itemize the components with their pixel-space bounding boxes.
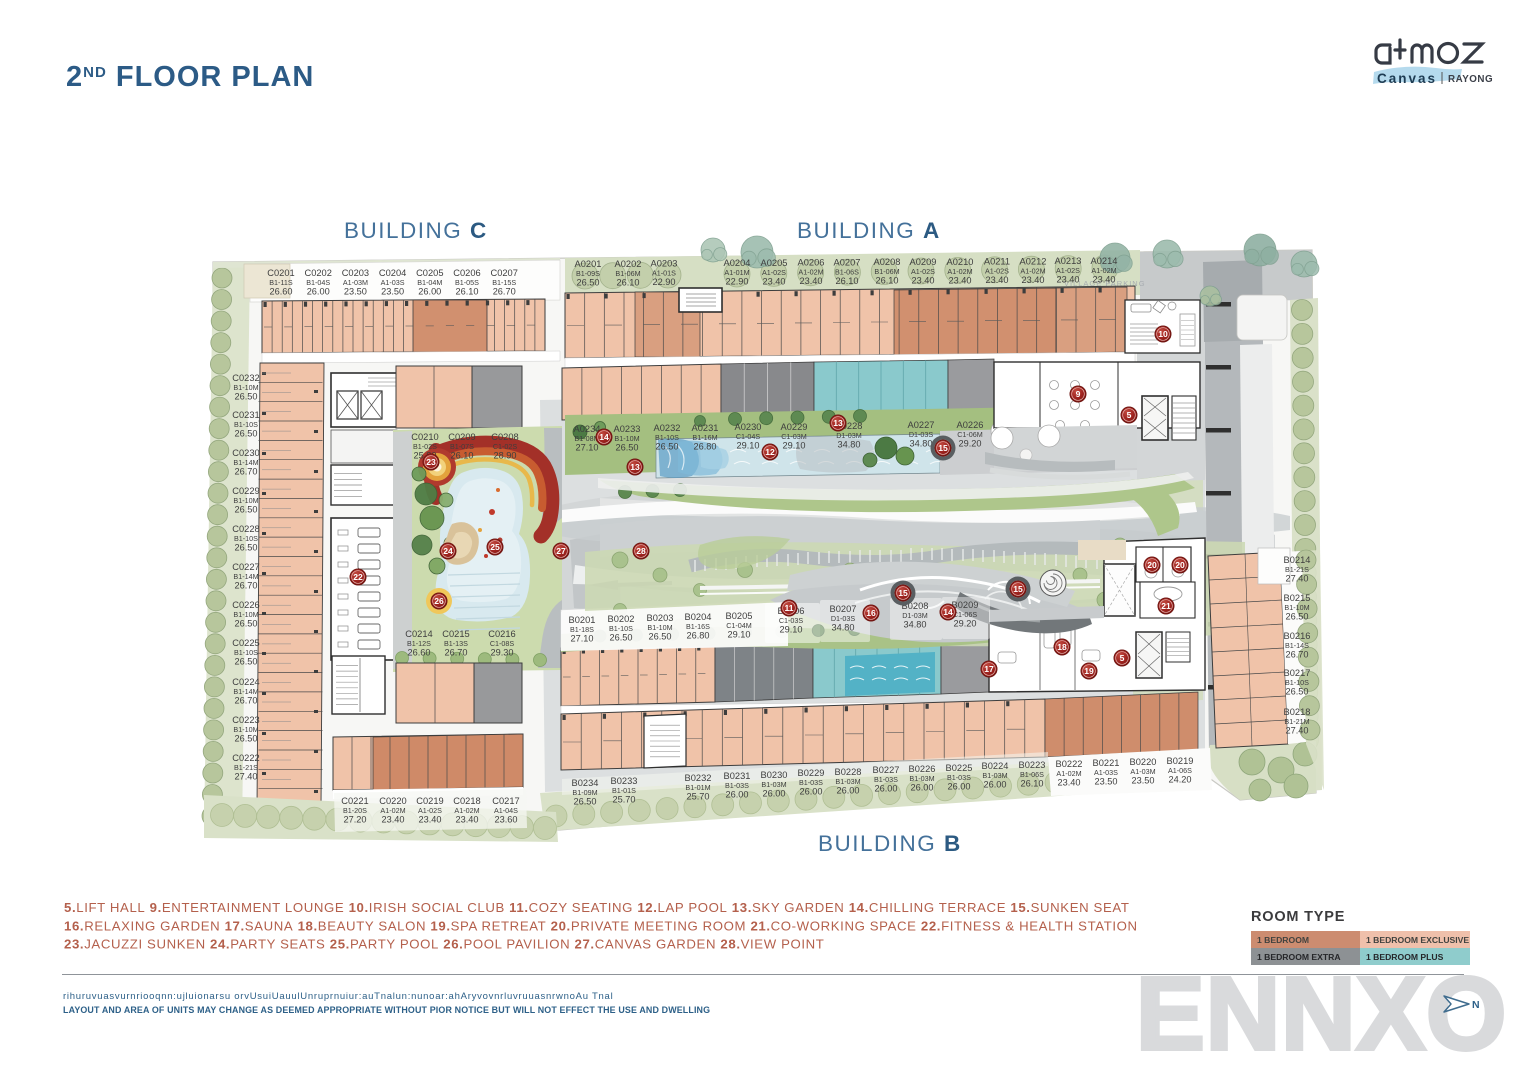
svg-text:20: 20 <box>1147 560 1157 570</box>
svg-text:23.40: 23.40 <box>949 275 972 285</box>
svg-text:23.60: 23.60 <box>495 815 518 825</box>
svg-text:C0230: C0230 <box>232 448 259 458</box>
svg-text:BUILDING B: BUILDING B <box>818 831 962 856</box>
svg-text:13: 13 <box>630 462 640 472</box>
svg-text:C0219: C0219 <box>416 796 443 806</box>
svg-text:C0215: C0215 <box>442 629 469 639</box>
svg-text:23.40: 23.40 <box>763 276 786 286</box>
svg-text:26.50: 26.50 <box>574 797 597 807</box>
svg-text:27.40: 27.40 <box>1286 574 1309 584</box>
svg-text:26.70: 26.70 <box>493 287 516 297</box>
svg-text:23.40: 23.40 <box>382 815 405 825</box>
svg-text:RAYONG: RAYONG <box>1448 74 1493 85</box>
svg-text:25.70: 25.70 <box>613 795 636 805</box>
svg-text:A0211: A0211 <box>984 257 1010 267</box>
svg-text:26.50: 26.50 <box>235 619 258 629</box>
svg-text:C0223: C0223 <box>232 715 259 725</box>
svg-text:C0202: C0202 <box>304 268 331 278</box>
svg-text:34.80: 34.80 <box>832 623 855 633</box>
svg-text:B0234: B0234 <box>572 778 599 788</box>
svg-text:26: 26 <box>434 596 444 606</box>
svg-text:15: 15 <box>938 443 948 453</box>
svg-text:C0217: C0217 <box>492 796 519 806</box>
svg-text:26.10: 26.10 <box>617 277 640 287</box>
svg-text:A0230: A0230 <box>735 422 762 432</box>
svg-text:22.90: 22.90 <box>653 277 676 287</box>
svg-text:26.00: 26.00 <box>307 287 330 297</box>
svg-text:23.50: 23.50 <box>381 287 404 297</box>
svg-text:23.40: 23.40 <box>419 815 442 825</box>
svg-text:29.20: 29.20 <box>954 619 977 629</box>
svg-text:20: 20 <box>1175 560 1185 570</box>
svg-text:A0205: A0205 <box>761 258 788 268</box>
svg-text:29.30: 29.30 <box>491 648 514 658</box>
svg-text:A0232: A0232 <box>654 423 681 433</box>
svg-text:A0214: A0214 <box>1091 256 1118 266</box>
svg-text:29.10: 29.10 <box>728 630 751 640</box>
svg-text:C0203: C0203 <box>342 268 369 278</box>
svg-text:B0207: B0207 <box>830 604 857 614</box>
svg-text:26.70: 26.70 <box>235 467 258 477</box>
svg-text:5.LIFT HALL 9.ENTERTAINMENT L: 5.LIFT HALL 9.ENTERTAINMENT LOUNGE 10.IR… <box>64 900 1130 915</box>
svg-text:C0208: C0208 <box>491 432 518 442</box>
svg-text:13: 13 <box>833 418 843 428</box>
svg-text:1 BEDROOM PLUS: 1 BEDROOM PLUS <box>1366 952 1444 962</box>
svg-text:26.10: 26.10 <box>451 451 474 461</box>
svg-text:B0229: B0229 <box>798 768 825 778</box>
svg-text:29.10: 29.10 <box>780 625 803 635</box>
svg-text:26.70: 26.70 <box>235 696 258 706</box>
svg-text:26.00: 26.00 <box>837 786 860 796</box>
svg-text:23.40: 23.40 <box>456 815 479 825</box>
svg-text:18: 18 <box>1057 642 1067 652</box>
svg-text:25.70: 25.70 <box>687 792 710 802</box>
svg-text:26.50: 26.50 <box>610 633 633 643</box>
svg-text:26.50: 26.50 <box>1286 687 1309 697</box>
svg-text:A0202: A0202 <box>615 259 642 269</box>
svg-text:10: 10 <box>1158 329 1168 339</box>
svg-text:C0209: C0209 <box>448 432 475 442</box>
svg-text:24.20: 24.20 <box>1169 775 1192 785</box>
svg-text:B0216: B0216 <box>1284 631 1311 641</box>
svg-text:27.10: 27.10 <box>576 443 599 453</box>
svg-text:26.00: 26.00 <box>418 287 441 297</box>
svg-text:N: N <box>1472 999 1480 1011</box>
svg-text:23.40: 23.40 <box>1022 275 1045 285</box>
svg-text:C0231: C0231 <box>232 410 259 420</box>
svg-text:26.00: 26.00 <box>763 789 786 799</box>
svg-text:C0206: C0206 <box>453 268 480 278</box>
svg-text:28: 28 <box>636 546 646 556</box>
svg-text:25: 25 <box>490 542 500 552</box>
svg-text:A0203: A0203 <box>651 259 678 269</box>
svg-text:C0221: C0221 <box>341 796 368 806</box>
svg-text:26.50: 26.50 <box>649 632 672 642</box>
svg-text:BUILDING A: BUILDING A <box>797 218 941 243</box>
svg-text:C0207: C0207 <box>490 268 517 278</box>
svg-text:14: 14 <box>599 432 609 442</box>
svg-text:16.RELAXING GARDEN 17.SAUNA: 16.RELAXING GARDEN 17.SAUNA 18.BEAUTY SA… <box>64 919 1138 934</box>
svg-text:B0221: B0221 <box>1093 758 1120 768</box>
svg-text:15: 15 <box>898 588 908 598</box>
svg-text:23.50: 23.50 <box>1095 777 1118 787</box>
svg-text:9: 9 <box>1076 389 1081 399</box>
svg-text:C0218: C0218 <box>453 796 480 806</box>
svg-text:23.40: 23.40 <box>1057 275 1080 285</box>
svg-text:26.00: 26.00 <box>800 787 823 797</box>
svg-text:BUILDING C: BUILDING C <box>344 218 488 243</box>
svg-text:34.80: 34.80 <box>904 620 927 630</box>
svg-text:1 BEDROOM EXTRA: 1 BEDROOM EXTRA <box>1257 952 1341 962</box>
svg-text:27.40: 27.40 <box>235 772 258 782</box>
svg-text:C0232: C0232 <box>232 373 259 383</box>
svg-text:29.10: 29.10 <box>737 441 760 451</box>
svg-text:12: 12 <box>765 447 775 457</box>
svg-text:B0214: B0214 <box>1284 555 1311 565</box>
svg-text:B0230: B0230 <box>761 770 788 780</box>
svg-text:A0207: A0207 <box>834 257 861 267</box>
svg-text:C0228: C0228 <box>232 524 259 534</box>
svg-text:26.50: 26.50 <box>235 657 258 667</box>
svg-text:B0205: B0205 <box>726 611 753 621</box>
svg-text:26.10: 26.10 <box>836 276 859 286</box>
svg-text:C0216: C0216 <box>488 629 515 639</box>
svg-text:11: 11 <box>784 603 793 613</box>
svg-text:Canvas: Canvas <box>1377 71 1437 86</box>
svg-text:A0213: A0213 <box>1055 256 1082 266</box>
svg-text:24: 24 <box>443 546 453 556</box>
svg-text:B0231: B0231 <box>724 771 751 781</box>
svg-text:A0233: A0233 <box>614 424 641 434</box>
svg-text:A0229: A0229 <box>781 422 808 432</box>
svg-text:26.00: 26.00 <box>875 784 898 794</box>
svg-text:B0215: B0215 <box>1284 593 1311 603</box>
svg-text:23.JACUZZI SUNKEN 24.PARTY SE: 23.JACUZZI SUNKEN 24.PARTY SEATS 25.PART… <box>64 937 824 952</box>
svg-text:5: 5 <box>1127 410 1132 420</box>
svg-text:A0212: A0212 <box>1020 256 1047 266</box>
svg-text:23.40: 23.40 <box>1093 274 1116 284</box>
svg-text:26.50: 26.50 <box>577 278 600 288</box>
svg-text:B0228: B0228 <box>835 767 862 777</box>
svg-text:B0203: B0203 <box>647 613 674 623</box>
svg-text:B0204: B0204 <box>685 612 712 622</box>
svg-text:A0204: A0204 <box>724 258 751 268</box>
svg-text:26.50: 26.50 <box>235 505 258 515</box>
svg-text:B0232: B0232 <box>685 773 712 783</box>
svg-text:27.20: 27.20 <box>344 815 367 825</box>
svg-text:26.50: 26.50 <box>235 734 258 744</box>
svg-text:22.90: 22.90 <box>726 277 749 287</box>
svg-text:B0227: B0227 <box>873 765 900 775</box>
svg-text:C0225: C0225 <box>232 638 259 648</box>
svg-text:A0206: A0206 <box>798 258 825 268</box>
svg-text:26.00: 26.00 <box>948 782 971 792</box>
svg-text:14: 14 <box>943 607 953 617</box>
svg-text:23.50: 23.50 <box>344 287 367 297</box>
svg-text:ROOM TYPE: ROOM TYPE <box>1251 909 1345 925</box>
svg-text:C0226: C0226 <box>232 600 259 610</box>
svg-text:29.20: 29.20 <box>959 439 982 449</box>
svg-text:26.50: 26.50 <box>656 442 679 452</box>
svg-text:A0209: A0209 <box>910 257 937 267</box>
svg-text:A0226: A0226 <box>957 420 984 430</box>
svg-text:B0202: B0202 <box>608 614 635 624</box>
svg-text:27.10: 27.10 <box>571 634 594 644</box>
svg-text:B0218: B0218 <box>1284 707 1311 717</box>
svg-text:26.10: 26.10 <box>456 287 479 297</box>
svg-text:23.50: 23.50 <box>1132 776 1155 786</box>
svg-text:26.70: 26.70 <box>235 581 258 591</box>
svg-text:26.80: 26.80 <box>694 442 717 452</box>
svg-text:B0201: B0201 <box>569 615 596 625</box>
svg-text:26.10: 26.10 <box>876 276 899 286</box>
svg-text:17: 17 <box>984 664 994 674</box>
svg-text:26.10: 26.10 <box>1021 779 1044 789</box>
svg-text:B0223: B0223 <box>1019 760 1046 770</box>
svg-text:C0210: C0210 <box>411 432 438 442</box>
svg-text:26.00: 26.00 <box>984 780 1007 790</box>
svg-text:27: 27 <box>556 546 566 556</box>
svg-text:C0222: C0222 <box>232 753 259 763</box>
svg-text:23.40: 23.40 <box>986 275 1009 285</box>
svg-text:26.00: 26.00 <box>726 790 749 800</box>
svg-text:19: 19 <box>1084 666 1094 676</box>
svg-text:C0204: C0204 <box>379 268 406 278</box>
svg-text:B0219: B0219 <box>1167 756 1194 766</box>
svg-text:B0233: B0233 <box>611 776 638 786</box>
svg-text:B0217: B0217 <box>1284 668 1311 678</box>
svg-text:C0229: C0229 <box>232 486 259 496</box>
svg-text:5: 5 <box>1120 653 1125 663</box>
svg-text:23.40: 23.40 <box>800 276 823 286</box>
svg-text:26.50: 26.50 <box>235 392 258 402</box>
svg-text:1 BEDROOM: 1 BEDROOM <box>1257 935 1309 945</box>
svg-text:C0224: C0224 <box>232 677 259 687</box>
svg-text:C0220: C0220 <box>379 796 406 806</box>
svg-text:15: 15 <box>1013 584 1023 594</box>
svg-text:A0208: A0208 <box>874 257 901 267</box>
svg-text:23.40: 23.40 <box>1058 778 1081 788</box>
svg-text:C0227: C0227 <box>232 562 259 572</box>
svg-text:B0224: B0224 <box>982 761 1009 771</box>
svg-text:26.80: 26.80 <box>687 631 710 641</box>
svg-text:26.50: 26.50 <box>1286 612 1309 622</box>
svg-text:23.40: 23.40 <box>912 275 935 285</box>
svg-text:16: 16 <box>866 608 876 618</box>
svg-text:22: 22 <box>353 572 363 582</box>
svg-text:C0214: C0214 <box>405 629 432 639</box>
svg-text:B0220: B0220 <box>1130 757 1157 767</box>
svg-text:LAYOUT AND AREA OF UNITS MAY C: LAYOUT AND AREA OF UNITS MAY CHANGE AS D… <box>63 1005 710 1015</box>
svg-text:26.70: 26.70 <box>1286 650 1309 660</box>
svg-text:B0225: B0225 <box>946 763 973 773</box>
svg-text:B0226: B0226 <box>909 764 936 774</box>
svg-text:B0222: B0222 <box>1056 759 1083 769</box>
svg-text:26.50: 26.50 <box>235 543 258 553</box>
svg-text:26.00: 26.00 <box>911 783 934 793</box>
svg-text:28.90: 28.90 <box>494 451 517 461</box>
svg-text:1 BEDROOM EXCLUSIVE: 1 BEDROOM EXCLUSIVE <box>1366 935 1469 945</box>
svg-text:26.50: 26.50 <box>616 443 639 453</box>
svg-text:29.10: 29.10 <box>783 441 806 451</box>
svg-text:rihuruvuasvurnriooqnn:ujluiona: rihuruvuasvurnriooqnn:ujluionarsu orvUsu… <box>63 991 613 1002</box>
svg-text:34.80: 34.80 <box>838 440 861 450</box>
svg-text:26.60: 26.60 <box>408 648 431 658</box>
svg-text:ENNXO: ENNXO <box>1136 956 1507 1071</box>
svg-text:A0210: A0210 <box>947 257 974 267</box>
svg-text:23: 23 <box>426 457 436 467</box>
svg-text:A0231: A0231 <box>692 423 719 433</box>
svg-text:C0205: C0205 <box>416 268 443 278</box>
svg-text:A0201: A0201 <box>575 259 602 269</box>
svg-text:26.50: 26.50 <box>235 429 258 439</box>
svg-text:C0201: C0201 <box>267 268 294 278</box>
svg-text:27.40: 27.40 <box>1286 726 1309 736</box>
svg-text:34.80: 34.80 <box>910 439 933 449</box>
svg-text:26.60: 26.60 <box>270 287 293 297</box>
svg-text:A0227: A0227 <box>908 420 935 430</box>
svg-text:26.70: 26.70 <box>445 648 468 658</box>
svg-text:A0234: A0234 <box>574 424 601 434</box>
svg-text:21: 21 <box>1161 601 1171 611</box>
